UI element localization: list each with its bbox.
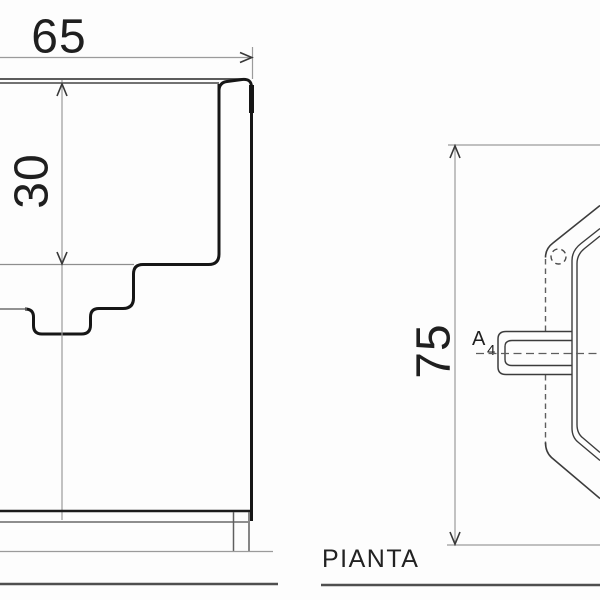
inner-rim-outer-line	[572, 229, 600, 461]
plan-view: 75 A 4 PIANTA	[322, 145, 600, 573]
outer-edge-top-diagonal	[546, 206, 600, 258]
section-letter: A	[472, 328, 486, 350]
inner-rim-inner-line	[577, 236, 600, 453]
outer-edge-bottom-diagonal	[546, 443, 600, 499]
dim-65-label: 65	[31, 11, 86, 64]
tap-outer-outline	[498, 332, 573, 375]
side-section-view: 65 30	[0, 11, 273, 552]
faucet-hole-circle	[551, 249, 566, 264]
section-ref-label: A 4	[472, 328, 495, 359]
section-subscript: 4	[487, 342, 495, 359]
dim-width-65: 65	[0, 11, 253, 80]
dim-height-75: 75	[408, 145, 600, 545]
dim-75-label: 75	[408, 323, 461, 378]
view-label-pianta: PIANTA	[322, 545, 419, 573]
drawing-canvas: 65 30	[0, 0, 600, 600]
technical-drawing-page: 65 30	[0, 0, 600, 600]
wall-outer-contour	[219, 79, 252, 521]
dim-30-label: 30	[6, 153, 59, 208]
dim-depth-30: 30	[6, 80, 68, 520]
tap-block	[498, 332, 573, 375]
